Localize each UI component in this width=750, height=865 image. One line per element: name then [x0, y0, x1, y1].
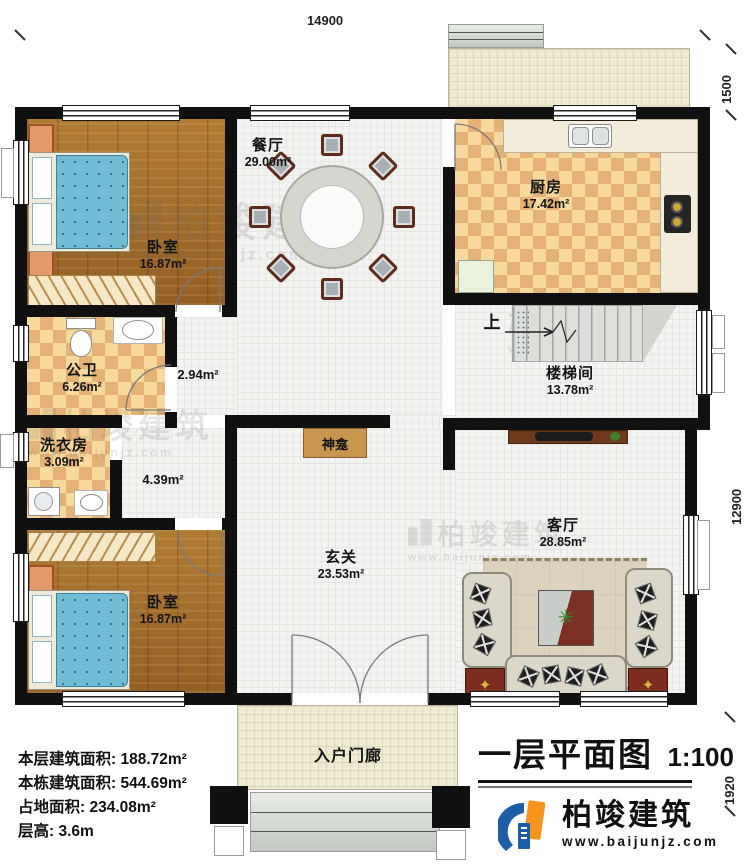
brand-logo: 柏竣建筑 www.baijunjz.com: [498, 795, 719, 855]
room-label-bedroom1: 卧室16.87m²: [140, 240, 187, 271]
room-label-foyer: 玄关23.53m²: [318, 550, 365, 581]
watermark-logo-icon: [128, 200, 162, 238]
window: [62, 105, 180, 121]
wardrobe: [28, 532, 156, 562]
stove-burner: [671, 216, 683, 228]
room-label-laundry: 洗衣房3.09m²: [40, 438, 88, 469]
room-label-corridor: 4.39m²: [142, 473, 183, 488]
nightstand: [28, 565, 54, 593]
room-label-kitchen: 厨房17.42m²: [523, 180, 570, 211]
title-underline: [478, 780, 692, 783]
room-label-living: 客厅28.85m²: [540, 518, 587, 549]
terrace-steps: [448, 24, 544, 48]
toilet-tank: [66, 318, 96, 329]
bed-quilt: [56, 155, 128, 249]
room-label-dining: 餐厅29.00m²: [245, 138, 292, 169]
dining-chair: [249, 206, 271, 228]
pillow: [32, 203, 52, 245]
washer-door: [34, 492, 53, 511]
room-label-hall: 2.94m²: [177, 368, 218, 383]
stairs-diagonal: [643, 305, 677, 362]
window: [13, 432, 29, 462]
window: [696, 310, 712, 395]
window-sill: [1, 148, 14, 198]
dim-right-middle: 12900: [729, 489, 744, 525]
window: [580, 691, 668, 707]
room-label-bathroom: 公卫6.26m²: [62, 363, 102, 394]
dining-chair: [393, 206, 415, 228]
window-sill: [0, 434, 14, 468]
stat-line: 本层建筑面积: 188.72m²: [18, 748, 187, 772]
sink-basin: [572, 127, 589, 145]
console-plant: [610, 432, 620, 441]
room-label-bedroom2: 卧室16.87m²: [140, 595, 187, 626]
stat-line: 本栋建筑面积: 544.69m²: [18, 772, 187, 796]
foyer-living-link-floor: [443, 470, 455, 693]
window: [13, 325, 29, 362]
window: [62, 691, 185, 707]
window: [250, 105, 350, 121]
porch-column-base-left: [214, 826, 244, 856]
stairs: [512, 305, 643, 362]
drawing-title: 一层平面图 1:100: [478, 728, 734, 788]
stat-line: 层高: 3.6m: [18, 820, 187, 844]
brand-url: www.baijunjz.com: [562, 834, 719, 849]
window: [13, 140, 29, 205]
dim-top: 14900: [307, 13, 343, 28]
window-sill: [712, 315, 725, 349]
kitchen-door-floor: [455, 119, 503, 167]
bed-quilt: [56, 593, 128, 687]
wardrobe: [28, 275, 156, 307]
pillow: [32, 595, 52, 637]
drawing-scale: 1:100: [667, 742, 734, 772]
dining-chair: [321, 134, 343, 156]
dining-chair: [321, 278, 343, 300]
nightstand: [28, 124, 54, 154]
brand-logo-icon: [498, 795, 552, 855]
brand-name: 柏竣建筑: [562, 801, 719, 831]
bath-sink: [122, 320, 154, 340]
window-sill: [712, 353, 725, 393]
dim-right-top: 1500: [719, 75, 734, 104]
table-plant: ✳: [556, 608, 576, 628]
dining-table-top: [300, 185, 364, 249]
porch-column-base-right: [436, 830, 466, 860]
fridge: [458, 260, 494, 293]
terrace: [448, 48, 690, 108]
sink-basin: [592, 127, 609, 145]
stairs-column-dots: [516, 310, 529, 356]
floor-plan: 柏竣建筑 www.baijunjz.com 柏竣建筑 www.baijunjz.…: [0, 0, 750, 865]
stat-line: 占地面积: 234.08m²: [18, 796, 187, 820]
porch-steps: [250, 792, 440, 852]
pillow: [32, 157, 52, 199]
tv: [535, 432, 593, 441]
sofa-cushion: [564, 666, 584, 686]
room-label-stairwell: 楼梯间13.78m²: [546, 366, 594, 397]
window-sill: [697, 520, 710, 590]
room-label-porch: 入户门廊: [314, 748, 382, 766]
pillow: [32, 641, 52, 683]
sofa-cushion: [542, 665, 562, 685]
sofa-cushion: [472, 608, 492, 628]
porch-column-left: [210, 786, 248, 824]
watermark-logo-icon: [408, 519, 432, 546]
window: [553, 105, 637, 121]
porch-column-right: [432, 786, 470, 828]
window: [470, 691, 560, 707]
shrine-label: 神龛: [322, 434, 348, 453]
area-stats: 本层建筑面积: 188.72m² 本栋建筑面积: 544.69m² 占地面积: …: [18, 748, 187, 844]
window: [13, 553, 29, 622]
toilet: [70, 330, 92, 357]
title-underline-thin: [478, 786, 692, 788]
stove-burner: [671, 201, 683, 213]
stair-up-label: 上: [484, 313, 501, 332]
laundry-sink: [80, 494, 103, 511]
